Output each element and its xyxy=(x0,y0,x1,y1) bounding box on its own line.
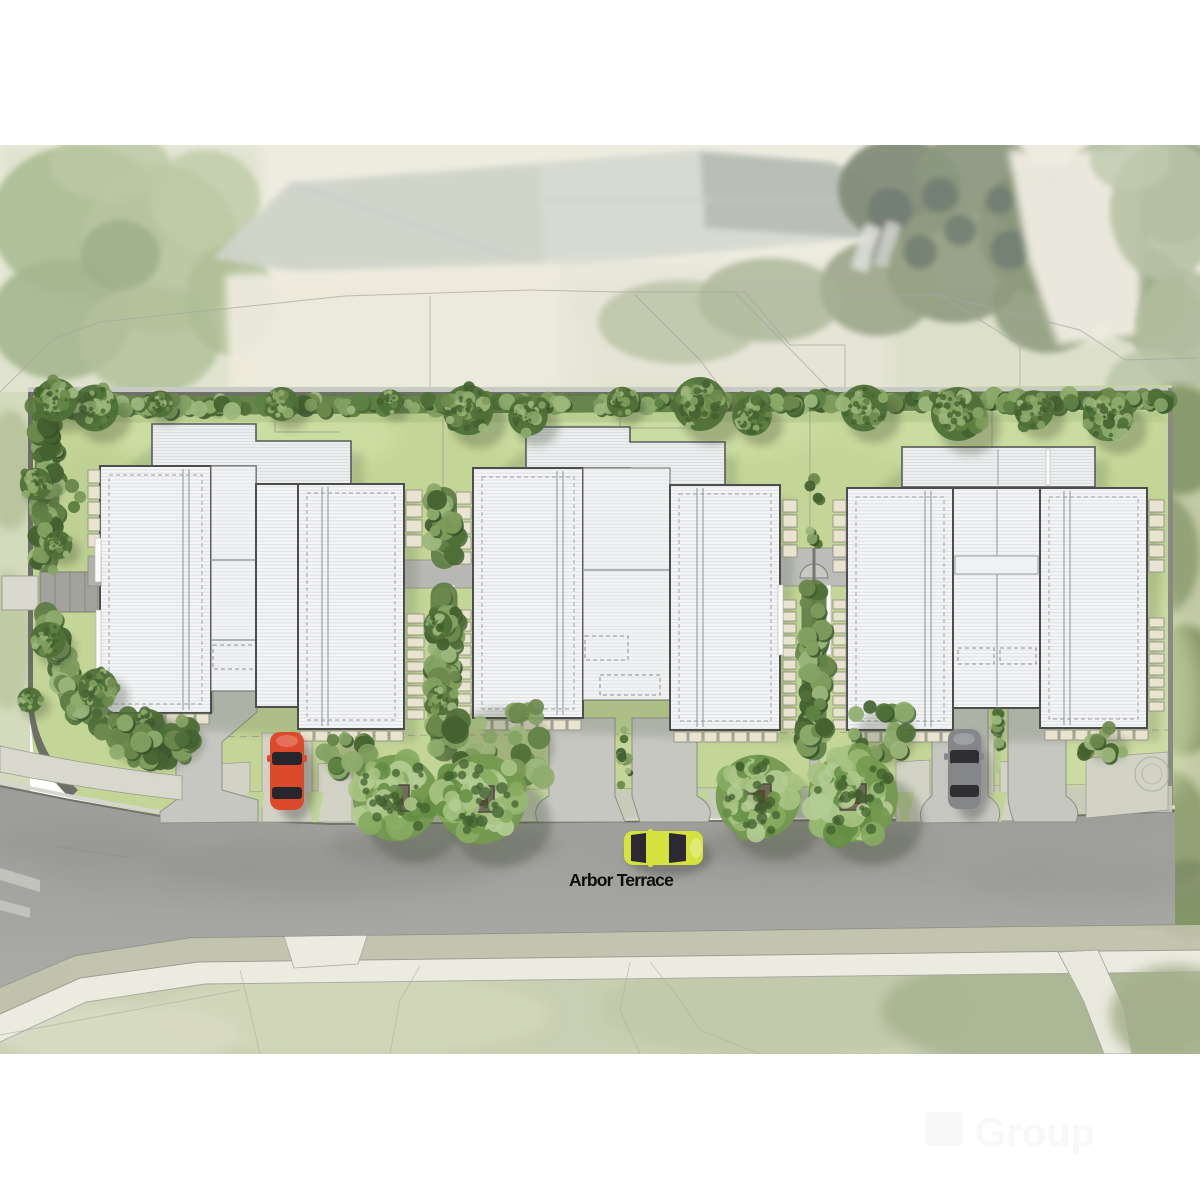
svg-text:Group: Group xyxy=(975,1111,1095,1155)
svg-text:Arbor Terrace: Arbor Terrace xyxy=(569,870,674,890)
